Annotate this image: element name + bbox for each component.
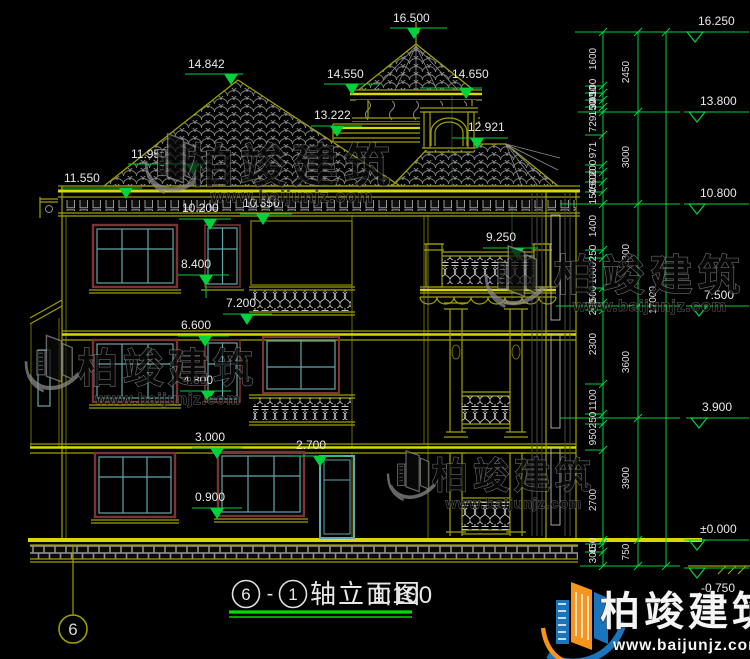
logo-bar-left: [556, 600, 569, 644]
dim-number: 150: [588, 99, 599, 116]
dim-number: 3600: [621, 350, 632, 373]
brand-url: www.baijunjz.com: [612, 637, 750, 654]
title-scale: 1:100: [372, 582, 432, 609]
elevation-label: 7.200: [226, 296, 256, 310]
title-axis-start: 6: [241, 585, 250, 604]
railing-2f-balusters: [253, 398, 351, 420]
cad-canvas: 16.500 14.842 14.550 14.650 13.222 12.92…: [0, 0, 750, 659]
elevation-label: 10.800: [700, 186, 737, 200]
ground-break-right: [688, 566, 750, 574]
elevation-label: 13.800: [700, 94, 737, 108]
window-1f-left-glazing: [99, 457, 171, 513]
watermark-name: 柏竣建筑: [554, 252, 746, 299]
window-3f-left: [93, 225, 177, 287]
elevation-label: 3.000: [195, 430, 225, 444]
ground: [28, 538, 750, 574]
ground-brick-band: [30, 545, 578, 559]
elevation-label: 12.921: [468, 120, 505, 134]
window-1f-center-glazing: [222, 456, 300, 512]
watermark-url: www.baijunjz.com: [572, 298, 727, 315]
elevation-marker-3-900: 3.900: [686, 400, 749, 428]
watermark-logo-icon: [26, 335, 79, 391]
dim-number: 250: [588, 411, 599, 428]
elevation-marker-16-500: 16.500: [390, 11, 447, 39]
brand-name: 柏竣建筑: [600, 590, 750, 634]
elevation-label: 2.700: [296, 438, 326, 452]
door-leaf: [324, 460, 350, 534]
watermark-top: 柏竣建筑 www.baijunjz.com: [146, 134, 396, 206]
left-bay-roof: [30, 300, 62, 324]
axis-label: 6: [68, 620, 77, 639]
axis-bubble: 6: [59, 545, 87, 643]
window-3f-left-glazing: [97, 229, 173, 283]
elevation-marker-8-400: 8.400: [178, 257, 229, 298]
elevation-marker-13-800: 13.800: [684, 94, 749, 122]
watermark-name: 柏竣建筑: [78, 347, 258, 391]
dim-number: 750: [621, 543, 632, 560]
dim-number: 2450: [621, 60, 632, 83]
dim-number: 971: [588, 141, 599, 158]
dim-number: 3900: [621, 466, 632, 489]
watermark-name: 柏竣建筑: [432, 455, 596, 496]
shaft-ring-right: [512, 345, 520, 359]
dim-number: 300: [588, 546, 599, 563]
elevation-marker-16-250: 16.250: [682, 14, 749, 42]
elevation-label: 13.222: [314, 108, 351, 122]
watermark-name: 柏竣建筑: [188, 140, 396, 192]
sills-1f: [91, 519, 308, 523]
title-block: 6 - 1 轴立面图 1:100: [229, 579, 432, 617]
railing-3f: [249, 287, 355, 315]
watermark-left: 柏竣建筑 www.baijunjz.com: [26, 335, 258, 408]
window-2f-center-glazing: [267, 341, 335, 389]
title-axis-end: 1: [288, 585, 297, 604]
watermark-url: www.baijunjz.com: [210, 187, 374, 206]
elevation-marker-14-842: 14.842: [185, 57, 243, 85]
balcony-corbels: [420, 297, 556, 304]
elevation-label: 8.400: [181, 257, 211, 271]
elevation-drawing: 16.500 14.842 14.550 14.650 13.222 12.92…: [0, 0, 750, 659]
watermark-right: 柏竣建筑 www.baijunjz.com: [486, 246, 746, 315]
balcony-post-caps: [424, 244, 552, 250]
dim-number: 3000: [621, 145, 632, 168]
watermark-url: www.baijunjz.com: [445, 495, 583, 511]
elevation-label: 14.550: [327, 67, 364, 81]
watermark-url: www.baijunjz.com: [94, 391, 240, 408]
elevation-label: 14.650: [452, 67, 489, 81]
dim-number: 1400: [588, 214, 599, 237]
elevation-marker-0-000: ±0.000: [684, 522, 749, 550]
eaves-left-return: [40, 197, 58, 218]
entry-door: [320, 456, 354, 538]
bases-2f: [444, 432, 528, 437]
railing-3f-balusters: [253, 290, 351, 312]
watermark-center-low: 柏竣建筑 www.baijunjz.com: [388, 451, 596, 511]
dim-number: 2300: [588, 332, 599, 355]
elevation-label: 3.900: [702, 400, 732, 414]
sills-3f: [89, 290, 244, 293]
elevation-label: 11.550: [64, 171, 100, 185]
dim-number: 1600: [588, 47, 599, 70]
elevation-label: 14.842: [188, 57, 225, 71]
railing-2f-portico-balusters: [462, 396, 510, 424]
railing-2f: [249, 395, 355, 425]
elevation-label: 0.900: [195, 490, 225, 504]
title-separator: -: [267, 583, 274, 605]
elevation-label: ±0.000: [700, 522, 737, 536]
opening-3f-balcony: [251, 221, 352, 285]
eaves-scroll: [46, 206, 53, 213]
columns-2f: [444, 303, 528, 437]
window-1f-left: [95, 453, 175, 517]
dim-number: 150: [588, 187, 599, 204]
window-1f-center: [218, 452, 304, 516]
dim-number: 1100: [588, 389, 599, 411]
shaft-ring-left: [452, 345, 460, 359]
elevation-label: 16.250: [698, 14, 735, 28]
dim-number: 729: [588, 115, 599, 132]
elevation-marker-10-800: 10.800: [684, 186, 749, 214]
elevation-label: 9.250: [486, 230, 516, 244]
dim-number: 950: [588, 428, 599, 445]
door-frame: [320, 456, 354, 538]
elevation-label: 6.600: [181, 318, 211, 332]
elevation-label: 16.500: [393, 11, 430, 25]
brand-logo: 柏竣建筑 www.baijunjz.com: [543, 582, 750, 659]
floor-3: [89, 221, 355, 315]
